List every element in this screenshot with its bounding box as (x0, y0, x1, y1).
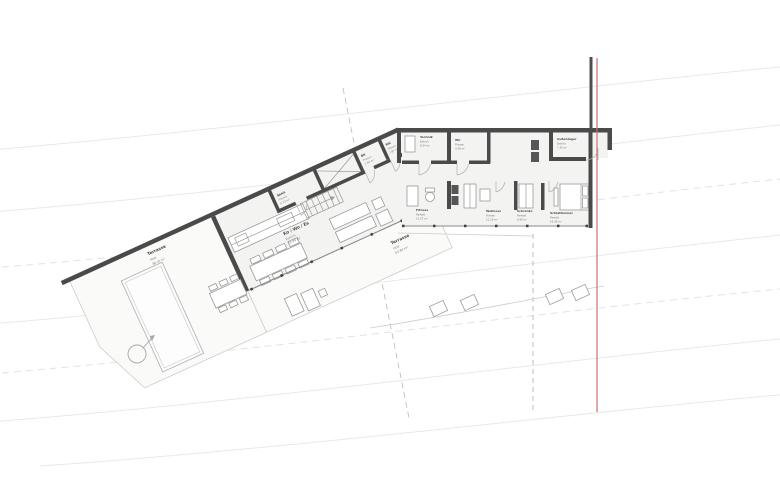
schlafzimmer-label: Schlafzimmer (550, 211, 573, 215)
left-wing-group: Terrasse Holz 38.10 m² Ko / Wo / Es Estr… (61, 128, 452, 402)
svg-text:3.46 m²: 3.46 m² (455, 147, 465, 151)
svg-text:Parkett: Parkett (416, 213, 425, 217)
svg-text:Estrich: Estrich (420, 140, 429, 144)
svg-text:16.98 m²: 16.98 m² (550, 220, 562, 224)
svg-text:Estrich: Estrich (557, 142, 566, 146)
aussenlager-label: Außenlager (557, 137, 577, 141)
shelf-dark-2 (452, 196, 459, 205)
wellness-label: Wellness (486, 209, 501, 213)
svg-text:6.89 m²: 6.89 m² (517, 218, 527, 222)
svg-text:Parkett: Parkett (550, 216, 559, 220)
svg-text:8.54 m²: 8.54 m² (420, 144, 430, 148)
svg-text:7.35 m²: 7.35 m² (557, 146, 567, 150)
svg-text:10.18 m²: 10.18 m² (486, 218, 498, 222)
hall-closet-2 (531, 152, 539, 162)
floor-plan-drawing: Terrasse Holz 38.10 m² Ko / Wo / Es Estr… (0, 0, 780, 480)
svg-text:Fliesen: Fliesen (486, 214, 495, 218)
wardrobe-closet (519, 184, 533, 208)
shelf-dark (452, 185, 459, 194)
svg-text:13.27 m²: 13.27 m² (416, 217, 428, 221)
fitness-label: Fitness (416, 208, 428, 212)
hall-closet (531, 140, 539, 150)
schrankraum-label: Schrankr. (517, 209, 533, 213)
floor-plan-canvas: Terrasse Holz 38.10 m² Ko / Wo / Es Estr… (0, 0, 780, 480)
svg-text:Parkett: Parkett (517, 214, 526, 218)
technik-label: Technik (420, 135, 434, 139)
technik-unit (405, 136, 415, 152)
wc-right-label: WC (455, 138, 461, 142)
svg-text:Fliesen: Fliesen (455, 143, 464, 147)
